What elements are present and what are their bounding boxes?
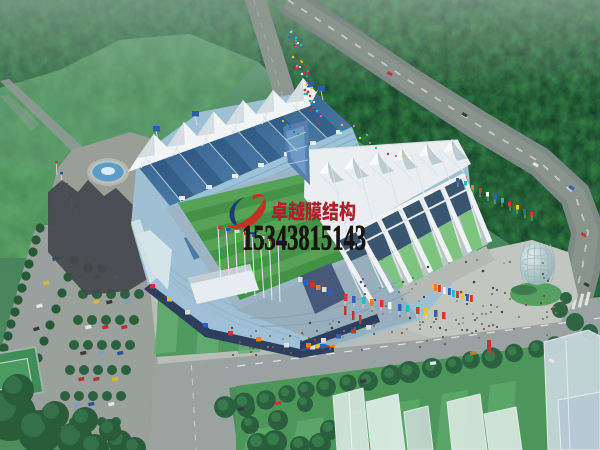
svg-text:15343815143: 15343815143 [242, 218, 366, 257]
